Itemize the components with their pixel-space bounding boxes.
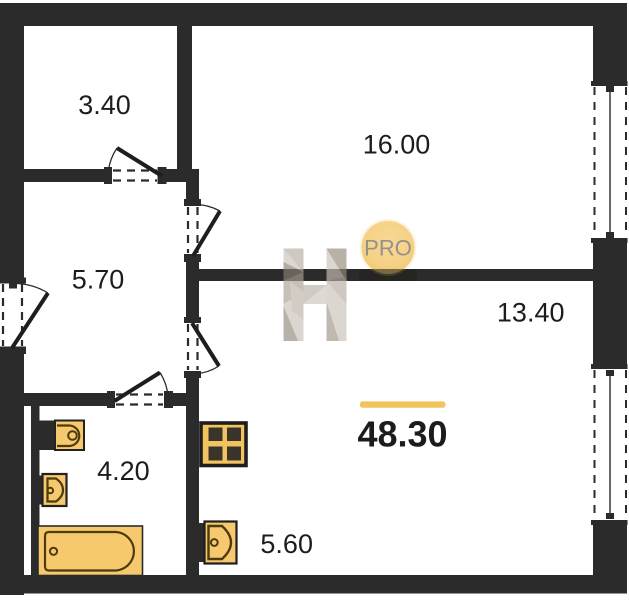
svg-text:13.40: 13.40 (497, 298, 565, 328)
svg-text:PRO: PRO (364, 236, 412, 261)
svg-text:4.20: 4.20 (97, 456, 150, 486)
svg-text:3.40: 3.40 (78, 90, 131, 120)
svg-text:16.00: 16.00 (363, 129, 431, 159)
svg-text:5.60: 5.60 (260, 529, 313, 559)
svg-text:5.70: 5.70 (72, 264, 125, 294)
svg-text:48.30: 48.30 (357, 414, 447, 455)
